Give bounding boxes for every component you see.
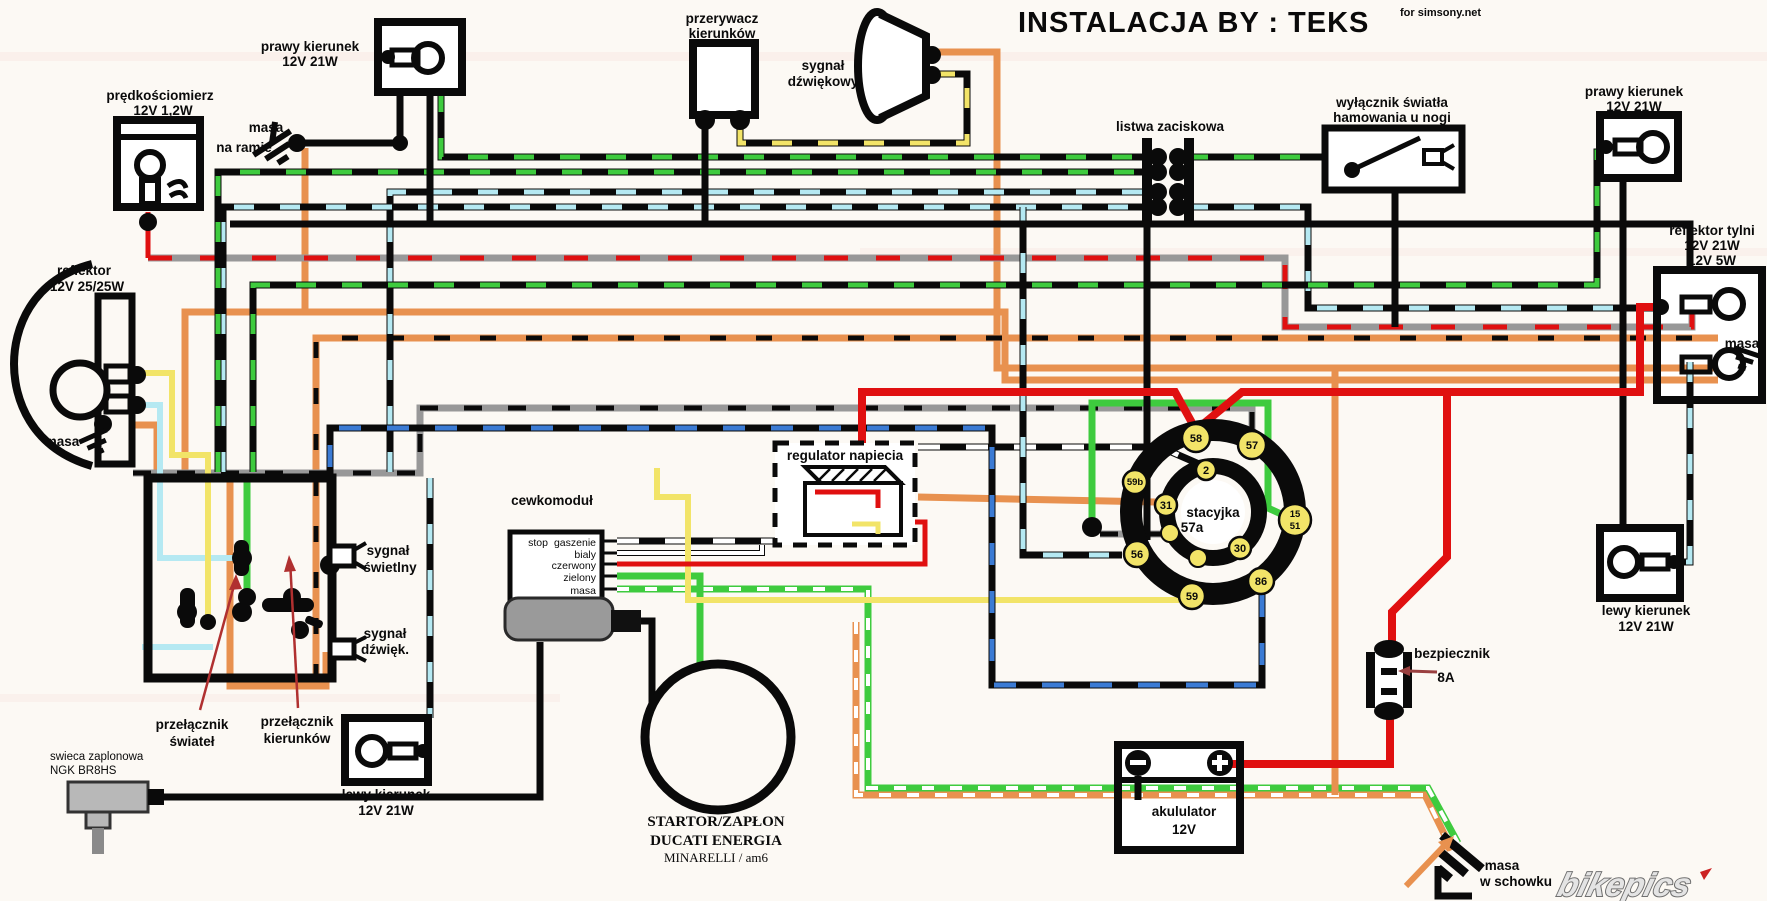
ground-bar	[1738, 366, 1746, 368]
junction-dot	[392, 135, 408, 151]
regulator-label: regulator napiecia	[787, 448, 904, 463]
terminal-dot-yellow	[1189, 549, 1207, 567]
terminal-dot	[1667, 555, 1681, 569]
battery-label: akululator	[1152, 804, 1217, 819]
light-switch-label2: świateł	[169, 734, 214, 749]
wire-black-bundle	[230, 224, 1690, 270]
terminal-label: 59b	[1127, 477, 1144, 488]
terminal-dot	[923, 46, 941, 64]
switch-dot	[232, 548, 252, 568]
stator-circle	[645, 664, 791, 810]
coil-body	[505, 598, 613, 640]
horn-contact-icon	[330, 640, 354, 658]
plus-icon-v	[1217, 755, 1222, 771]
terminal-dot	[730, 110, 750, 130]
horn-body-icon	[880, 14, 926, 118]
brake-switch-label1: wyłącznik światła	[1335, 95, 1448, 110]
headlight-masa: masa	[45, 434, 80, 449]
fuse-arrow	[1408, 671, 1437, 672]
terminal-2: 2	[1196, 460, 1216, 480]
horn-label1: sygnał	[802, 58, 845, 73]
junction-dot	[288, 134, 306, 152]
wire-gray-light	[133, 408, 1252, 473]
horn-signal-label1: sygnał	[364, 626, 407, 641]
flasher-label1: przerywacz	[686, 11, 759, 26]
spark-plug-label1: swieca zaplonowa	[50, 751, 144, 763]
switch-contact-icon	[1424, 150, 1442, 164]
wire-green-rowA	[441, 92, 1148, 157]
terminal-label: 15	[1290, 509, 1301, 520]
ground-glovebox	[1406, 835, 1482, 896]
wire-gray-light	[133, 408, 1252, 473]
terminal-dot	[128, 366, 146, 384]
wire-orange-ign-31	[918, 497, 1155, 502]
horn-label2: dźwiękowy	[788, 74, 859, 89]
coil-pin-zielony: zielony	[563, 572, 596, 584]
terminal-dot	[381, 50, 395, 64]
strip-contact	[1169, 163, 1187, 181]
coil-output	[611, 610, 641, 632]
terminal-label: 56	[1131, 549, 1143, 561]
terminal-15-51: 15 51	[1279, 504, 1311, 536]
ground-frame-label1: masa	[249, 120, 284, 135]
brake-switch-label2: hamowania u nogi	[1333, 110, 1451, 125]
terminal-label: 57	[1246, 440, 1258, 452]
fuse-cap	[1374, 702, 1404, 720]
spark-plug-thread	[92, 828, 104, 854]
bikepics-logo-accent	[1700, 868, 1712, 880]
ground-glovebox-label1: masa	[1485, 858, 1520, 873]
wire-gray-red-brake	[148, 258, 1692, 327]
fuse-body	[1374, 652, 1404, 708]
handlebar-switch-cluster	[148, 478, 366, 710]
ground-glovebox-icon	[1424, 835, 1482, 890]
switch-dot	[200, 614, 216, 630]
ground-glovebox-label2: w schowku	[1479, 874, 1552, 889]
flash-signal-label1: sygnał	[367, 543, 410, 558]
terminal-dot	[695, 110, 715, 130]
wire-masa-ramie	[305, 92, 400, 143]
headlight-rating: 12V 25/25W	[50, 279, 125, 294]
terminal-label: 30	[1234, 543, 1246, 555]
turn-switch-label2: kierunków	[264, 731, 331, 746]
stator-label1: STARTOR/ZAPŁON	[647, 814, 784, 830]
right-turn-front-label: prawy kierunek	[261, 39, 360, 54]
tail-light-label: reflektor tylni	[1669, 223, 1755, 238]
spark-plug-terminal	[148, 789, 164, 805]
arrow-head	[284, 555, 296, 572]
coil-pin-masa: masa	[570, 585, 596, 597]
headlight-label: reflektor	[57, 263, 112, 278]
right-turn-front-rating: 12V 21W	[282, 54, 338, 69]
tail-light-rating2: 12V 5W	[1688, 253, 1736, 268]
terminal-dot	[1653, 299, 1669, 315]
minus-icon	[1130, 760, 1146, 765]
terminal-30: 30	[1229, 537, 1251, 559]
coil-pin-gaszenie: gaszenie	[554, 537, 596, 549]
ignition-label: stacyjka	[1186, 505, 1240, 520]
bg-streak	[0, 694, 560, 702]
fuse-side	[1403, 652, 1412, 708]
terminal-57a-dot	[1161, 524, 1179, 542]
page-title: INSTALACJA BY : TEKS	[1018, 7, 1369, 39]
page-subtitle: for simsony.net	[1400, 7, 1481, 19]
terminal-strip-label: listwa zaciskowa	[1116, 119, 1225, 134]
coil-pin-stop: stop	[528, 537, 548, 549]
left-turn-rear-label: lewy kierunek	[1602, 603, 1691, 618]
terminal-56: 56	[1124, 541, 1150, 567]
terminal-dot	[139, 213, 157, 231]
strip-contact	[1169, 198, 1187, 216]
flash-signal-label2: świetlny	[363, 560, 417, 575]
bikepics-watermark: bikepics	[1554, 867, 1695, 901]
terminal-dot	[923, 66, 941, 84]
horn-signal-label2: dźwięk.	[361, 642, 409, 657]
tail-light-rating1: 12V 21W	[1684, 238, 1740, 253]
fuse-rating: 8A	[1437, 670, 1455, 685]
junction-dot	[1082, 517, 1102, 537]
terminal-57: 57	[1238, 431, 1266, 459]
battery-rating: 12V	[1172, 822, 1196, 837]
flasher-box-fill	[693, 43, 755, 115]
spark-plug-hex	[86, 812, 110, 828]
fuse-label: bezpiecznik	[1414, 646, 1490, 661]
terminal-31: 31	[1155, 494, 1177, 516]
headlight	[14, 264, 146, 466]
terminal-58: 58	[1182, 424, 1210, 452]
coil-module-label: cewkomoduł	[511, 493, 593, 508]
ground-bar	[278, 157, 288, 164]
terminal-label: 59	[1186, 591, 1198, 603]
strip-contact	[1149, 163, 1167, 181]
terminal-59: 59	[1179, 583, 1205, 609]
switch-dot	[177, 602, 197, 622]
fuse-element	[1381, 688, 1397, 695]
fuse-element	[1381, 668, 1397, 675]
terminal-label: 51	[1290, 521, 1301, 532]
terminal-59b: 59b	[1123, 470, 1147, 494]
ignition-57a-label: 57a	[1181, 520, 1204, 535]
strip-contact	[1149, 198, 1167, 216]
ground-frame-label2: na ramie	[216, 140, 272, 155]
terminal-label: 58	[1190, 433, 1202, 445]
coil-pin-czerwony: czerwony	[552, 560, 597, 572]
terminal-strip	[1142, 138, 1194, 222]
terminal-label: 86	[1255, 576, 1267, 588]
fuse-side	[1366, 652, 1375, 708]
horn	[858, 12, 941, 120]
speedometer-label: prędkościomierz	[106, 88, 214, 103]
fuse-cap	[1374, 640, 1404, 658]
ground-bar	[96, 450, 103, 453]
terminal-dot	[1599, 140, 1613, 154]
switch-dot	[238, 588, 256, 606]
right-turn-rear-rating: 12V 21W	[1606, 99, 1662, 114]
wiring-diagram: 58 57 2 59b 31 15 51 56 30	[0, 0, 1767, 901]
flasher-label2: kierunków	[689, 26, 756, 41]
left-turn-front-label: lewy kierunek	[342, 787, 431, 802]
left-turn-front-rating: 12V 21W	[358, 803, 414, 818]
spark-plug-label2: NGK BR8HS	[50, 765, 117, 777]
stator-label2: DUCATI ENERGIA	[650, 833, 782, 849]
terminal-dot	[416, 744, 430, 758]
wire-red-battery-fuse	[1230, 717, 1390, 764]
stator-label3: MINARELLI / am6	[664, 850, 768, 865]
right-turn-rear-label: prawy kierunek	[1585, 84, 1684, 99]
tail-light-masa: masa	[1725, 336, 1760, 351]
speedometer-rating: 12V 1,2W	[133, 103, 193, 118]
terminal-label: 2	[1203, 465, 1209, 477]
bikepics-logo-text: bikepics	[1554, 867, 1695, 901]
wire-coil-stator	[640, 621, 652, 706]
terminal-label: 31	[1160, 500, 1172, 512]
left-turn-rear-rating: 12V 21W	[1618, 619, 1674, 634]
diagram-canvas: 58 57 2 59b 31 15 51 56 30	[0, 0, 1767, 901]
light-switch-label1: przełącznik	[156, 717, 229, 732]
wire-green-rowA	[441, 92, 1148, 157]
spark-plug-body	[68, 782, 148, 812]
turn-switch-label1: przełącznik	[261, 714, 334, 729]
wire-gray-red-brake	[148, 258, 1692, 327]
bulb-icon	[53, 363, 107, 417]
spark-plug	[68, 782, 164, 854]
terminal-86: 86	[1248, 568, 1274, 594]
flash-contact-icon	[330, 546, 354, 566]
terminal-dot	[128, 396, 146, 414]
